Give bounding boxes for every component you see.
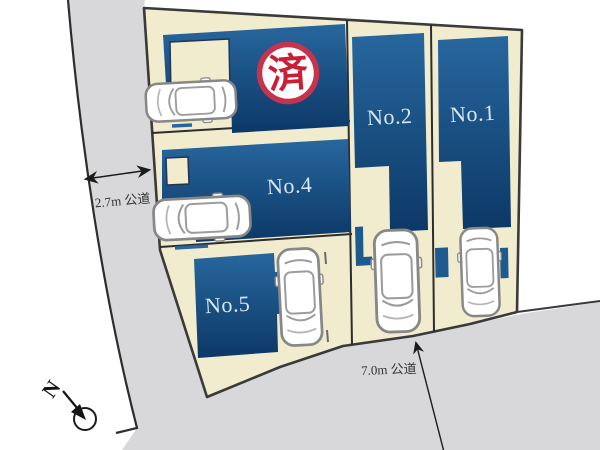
car-icon [153,192,252,245]
sold-badge: 済 [258,43,319,104]
road-width-label-bottom: 7.0m 公道 [361,361,417,378]
plot-label-no5: No.5 [204,291,251,319]
plot-label-no1: No.1 [449,100,496,127]
parking-marker [175,246,208,248]
car-icon [145,76,237,125]
building-notch [166,157,189,185]
plot-label-no4: No.4 [266,172,313,200]
plot-label-no2: No.2 [366,103,413,130]
sold-badge-label: 済 [267,50,311,98]
parking-marker [172,125,192,126]
parking-marker [327,330,328,342]
car-icon [274,248,327,347]
site-plan-canvas: 済 No.4 No.5 No.2 No.1 2.7m 公道 7.0m 公道 N [0,0,600,450]
parking-marker [325,252,326,264]
car-icon [370,229,424,332]
car-icon [457,227,503,316]
site-plan-diagram: 済 No.4 No.5 No.2 No.1 2.7m 公道 7.0m 公道 N [0,0,600,450]
parking-marker [435,247,449,277]
